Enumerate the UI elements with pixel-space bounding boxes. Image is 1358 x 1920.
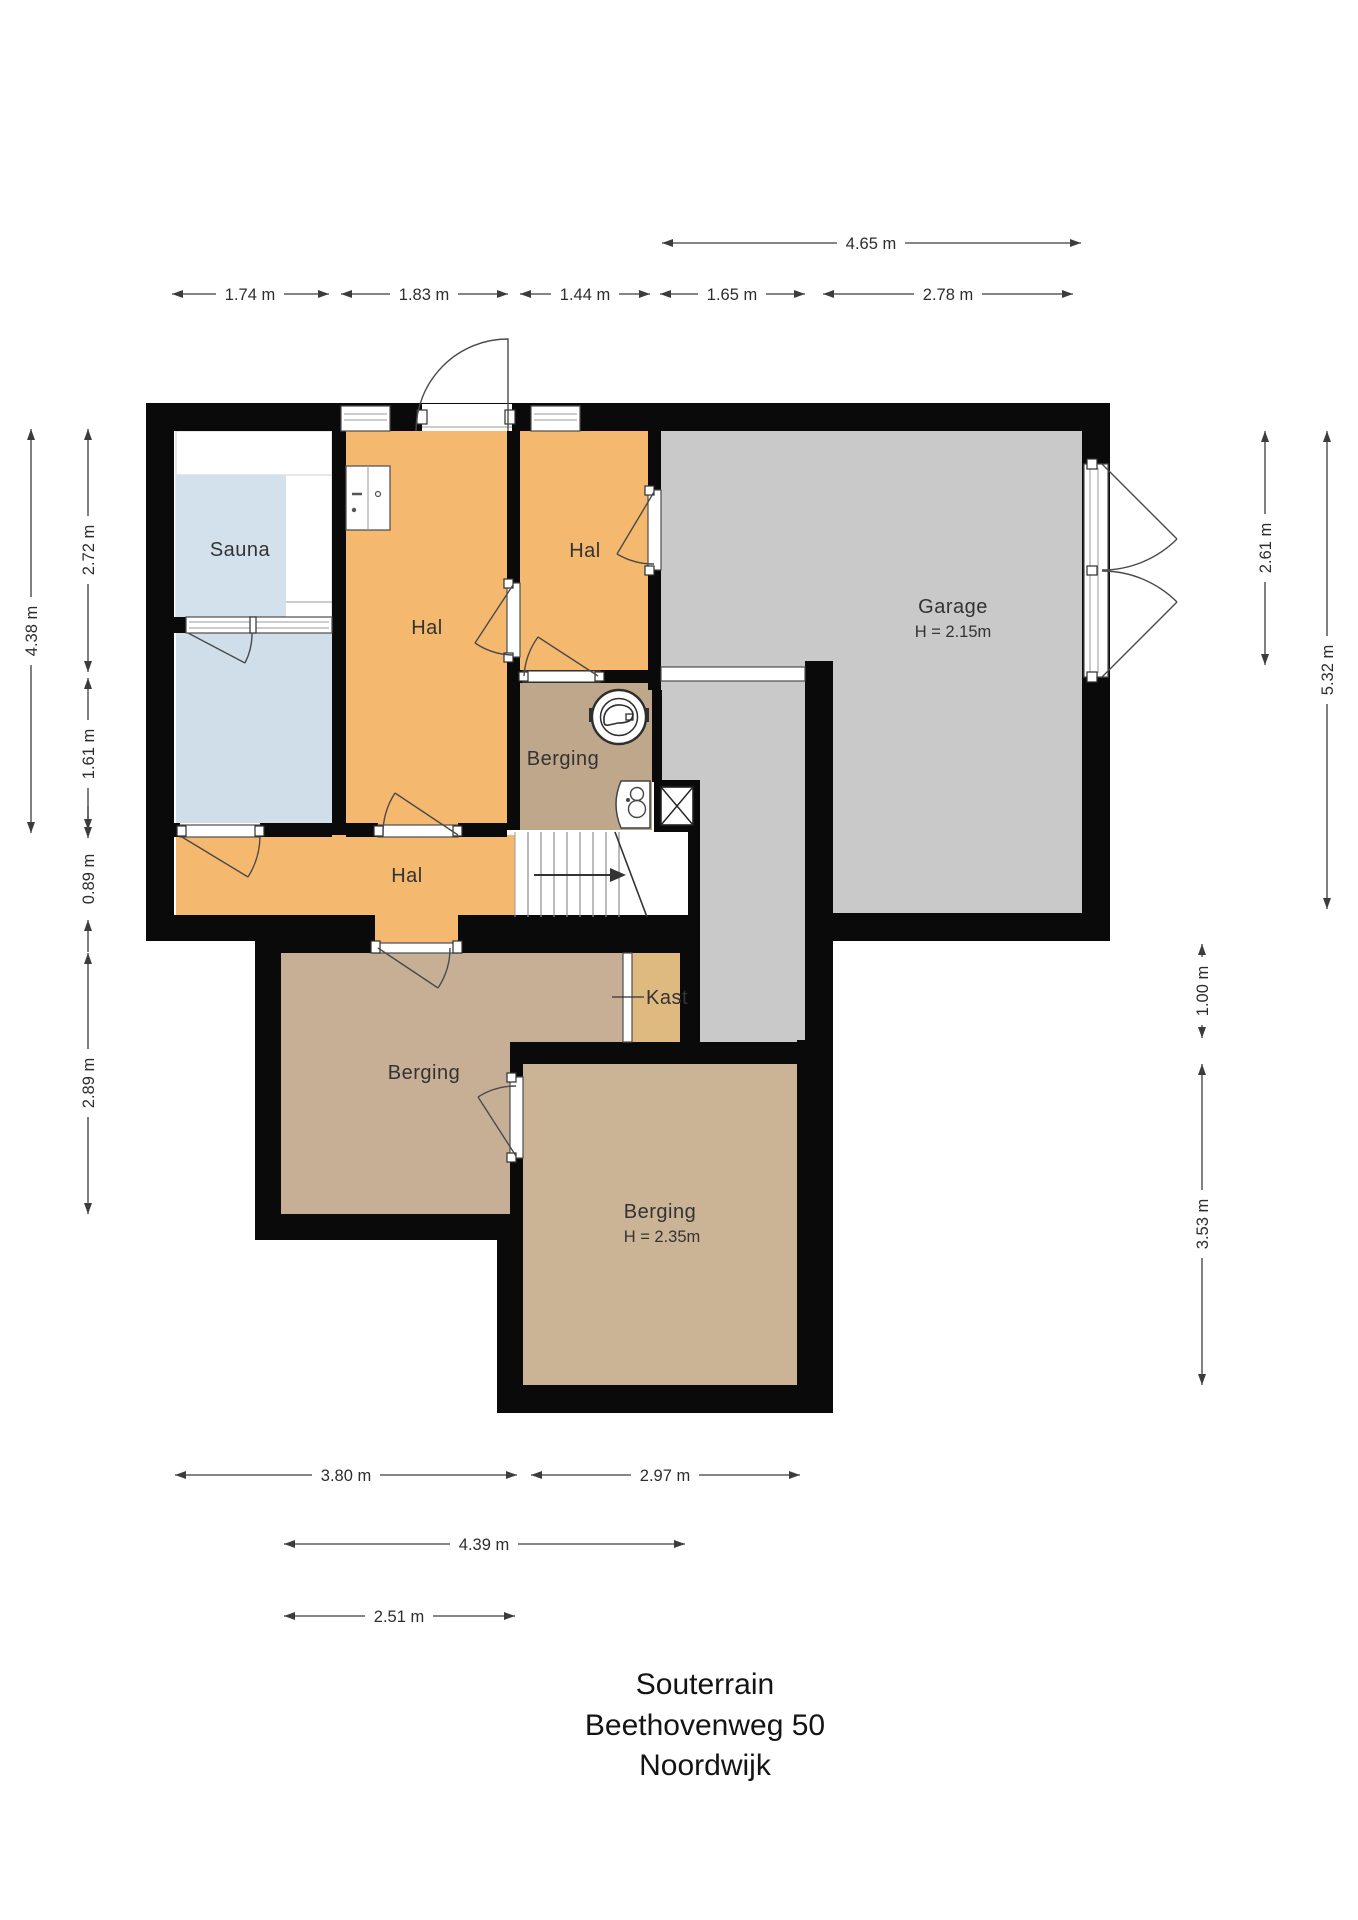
door-jamb — [453, 941, 462, 953]
svg-text:1.00 m: 1.00 m — [1194, 966, 1212, 1016]
wall — [833, 913, 1110, 941]
sauna-window — [186, 617, 332, 633]
svg-text:1.74 m: 1.74 m — [225, 286, 275, 304]
dimension-top-3: 1.44 m — [520, 284, 650, 304]
svg-text:1.83 m: 1.83 m — [399, 286, 449, 304]
door-jamb — [507, 1073, 516, 1082]
label-kast: Kast — [646, 987, 688, 1009]
dimension-bottom-3: 4.39 m — [284, 1534, 685, 1554]
wall — [652, 690, 662, 782]
hal-lower-floor — [176, 835, 515, 915]
wall — [497, 1385, 833, 1413]
wall — [146, 915, 255, 941]
svg-text:2.61 m: 2.61 m — [1257, 523, 1275, 573]
svg-text:1.65 m: 1.65 m — [707, 286, 757, 304]
garage-door-leaf-top — [1102, 464, 1177, 570]
wall — [458, 823, 507, 837]
vestibule-floor — [176, 431, 332, 475]
wall — [255, 915, 700, 953]
svg-text:5.32 m: 5.32 m — [1319, 645, 1337, 695]
door-opening — [507, 583, 520, 657]
label-hal-top: Hal — [569, 540, 601, 562]
svg-text:2.78 m: 2.78 m — [923, 286, 973, 304]
svg-text:3.53 m: 3.53 m — [1194, 1199, 1212, 1249]
wall — [648, 570, 661, 690]
dimension-bottom-1: 3.80 m — [175, 1465, 517, 1485]
dimension-right-3: 1.00 m — [1192, 944, 1212, 1038]
svg-text:4.38 m: 4.38 m — [23, 606, 41, 656]
svg-text:2.97 m: 2.97 m — [640, 1467, 690, 1485]
door-jamb — [595, 672, 604, 681]
garage-door-leaf-bottom — [1102, 571, 1177, 677]
title-city: Noordwijk — [639, 1749, 772, 1782]
dimension-top-total: 4.65 m — [662, 233, 1081, 253]
svg-text:4.39 m: 4.39 m — [459, 1536, 509, 1554]
door-jamb — [255, 826, 264, 836]
dimension-left-total: 4.38 m — [21, 429, 41, 833]
dimension-top-4: 1.65 m — [660, 284, 805, 304]
wall — [346, 823, 378, 837]
dimension-right-1: 2.61 m — [1255, 431, 1275, 665]
svg-text:3.80 m: 3.80 m — [321, 1467, 371, 1485]
wall — [255, 941, 281, 1240]
wall — [507, 431, 520, 583]
door-jamb — [505, 410, 515, 424]
door-jamb — [371, 941, 380, 953]
label-garage-height: H = 2.15m — [915, 623, 992, 641]
label-berging-big-height: H = 2.35m — [624, 1228, 701, 1246]
label-garage: Garage — [918, 596, 988, 618]
dimension-bottom-4: 2.51 m — [284, 1606, 515, 1626]
title-floor: Souterrain — [636, 1668, 774, 1701]
dimension-right-4: 3.53 m — [1192, 1064, 1212, 1385]
dimension-left-4: 2.89 m — [78, 953, 98, 1214]
dimension-left-3: 0.89 m — [78, 806, 98, 952]
dimension-right-2: 5.32 m — [1317, 431, 1337, 909]
door-jamb — [645, 566, 654, 575]
wall — [497, 1214, 523, 1413]
label-berging-big: Berging — [624, 1201, 696, 1223]
door-threshold — [375, 943, 458, 953]
label-hal-lower: Hal — [391, 865, 423, 887]
label-sauna: Sauna — [210, 539, 271, 561]
dimension-top-1: 1.74 m — [172, 284, 329, 304]
wall — [146, 403, 1110, 431]
wall — [260, 823, 332, 837]
floorplan-drawing: Sauna Hal Hal Garage H = 2.15m Berging H… — [0, 0, 1358, 1920]
sink-icon — [346, 466, 390, 530]
wall — [332, 431, 346, 835]
door-jamb — [177, 826, 186, 836]
door-jamb — [374, 826, 383, 836]
svg-text:4.65 m: 4.65 m — [846, 235, 896, 253]
wall — [174, 617, 186, 633]
label-berging-washer: Berging — [527, 748, 599, 770]
wall — [805, 661, 833, 1042]
plan-title: Souterrain Beethovenweg 50 Noordwijk — [585, 1668, 825, 1782]
dimension-bottom-2: 2.97 m — [531, 1465, 800, 1485]
wall — [507, 657, 520, 830]
garage-corridor-floor — [700, 830, 805, 1042]
dimension-left-1: 2.72 m — [78, 429, 98, 672]
svg-text:1.61 m: 1.61 m — [80, 729, 98, 779]
hal-door-extension — [375, 915, 458, 943]
window — [341, 406, 390, 431]
wall — [797, 1040, 833, 1413]
bathroom-floor — [176, 633, 332, 823]
dimension-top-2: 1.83 m — [341, 284, 508, 304]
wall — [255, 1214, 497, 1240]
garage-divider — [661, 667, 805, 681]
door-opening — [523, 671, 600, 682]
door-opening — [510, 1077, 523, 1158]
boiler-icon — [616, 781, 650, 828]
wall — [146, 403, 174, 941]
shaft-icon — [661, 787, 693, 825]
dimension-top-5: 2.78 m — [823, 284, 1073, 304]
label-hal-main: Hal — [411, 617, 443, 639]
window — [531, 406, 580, 431]
svg-text:0.89 m: 0.89 m — [80, 854, 98, 904]
door-jamb — [519, 672, 528, 681]
wall — [648, 431, 661, 490]
svg-text:2.72 m: 2.72 m — [80, 525, 98, 575]
door-opening — [648, 490, 661, 570]
svg-text:2.51 m: 2.51 m — [374, 1608, 424, 1626]
svg-text:1.44 m: 1.44 m — [560, 286, 610, 304]
label-berging-left: Berging — [388, 1062, 460, 1084]
floorplan-canvas: Sauna Hal Hal Garage H = 2.15m Berging H… — [0, 0, 1358, 1920]
wall — [523, 1042, 833, 1064]
svg-text:2.89 m: 2.89 m — [80, 1058, 98, 1108]
title-street: Beethovenweg 50 — [585, 1709, 825, 1742]
door-opening — [180, 825, 260, 837]
wall — [688, 830, 700, 930]
berging-big-floor — [523, 1064, 797, 1385]
